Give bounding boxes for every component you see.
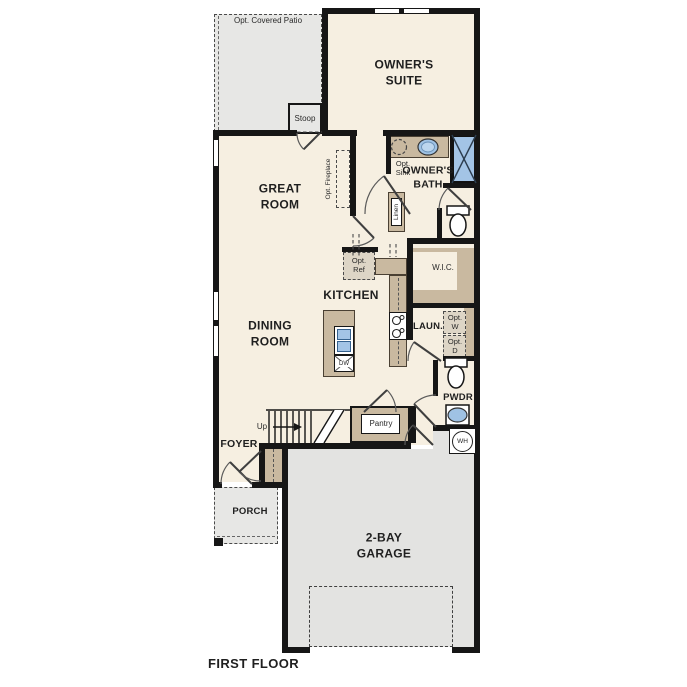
wall	[443, 183, 480, 188]
opt-dryer-box	[443, 335, 466, 357]
floor-plan: DW WH	[0, 0, 687, 687]
linen-closet-inner	[391, 198, 402, 226]
opt-washer-box	[443, 311, 466, 334]
wall	[410, 406, 416, 443]
garage-door-opening	[309, 586, 453, 647]
wall	[322, 8, 480, 14]
wall	[282, 647, 310, 653]
porch-column	[214, 538, 223, 546]
water-heater-box: WH	[449, 428, 476, 454]
wall	[213, 482, 222, 488]
opt-refrigerator-box	[343, 252, 375, 280]
wall	[386, 136, 391, 174]
wall	[259, 443, 351, 449]
window	[213, 325, 219, 357]
wall	[342, 247, 378, 252]
wall	[322, 8, 328, 136]
opt-fireplace-box	[336, 150, 350, 208]
bath-vanity-counter	[387, 136, 449, 158]
window	[213, 291, 219, 321]
wall	[413, 303, 474, 308]
room-owners-suite	[322, 8, 480, 136]
wic-floor	[413, 252, 457, 290]
wall	[407, 244, 413, 340]
window	[403, 8, 430, 14]
wall	[452, 647, 480, 653]
wall	[259, 443, 265, 485]
wall	[433, 360, 438, 396]
wall	[407, 238, 480, 244]
wall	[383, 130, 480, 136]
wall	[443, 356, 480, 361]
water-heater-label: WH	[457, 438, 468, 445]
wall	[474, 8, 480, 653]
wall	[252, 482, 283, 488]
window	[374, 8, 400, 14]
kitchen-counter-top	[375, 258, 407, 275]
wall	[213, 130, 297, 136]
window	[213, 139, 219, 167]
understair-closet-dash	[273, 449, 274, 482]
plan-title: FIRST FLOOR	[208, 656, 299, 671]
island-sink-basin-2	[337, 341, 351, 352]
pantry-inner	[361, 414, 400, 434]
dishwasher-label: DW	[338, 361, 350, 367]
wall	[350, 136, 356, 216]
cooktop	[389, 312, 407, 340]
wall	[437, 208, 442, 240]
porch-inner-dash	[217, 536, 275, 537]
island-sink-basin-1	[337, 329, 351, 340]
water-heater-circle: WH	[452, 431, 473, 452]
patio-inner-dash	[218, 16, 219, 130]
wall	[282, 443, 288, 653]
dishwasher: DW	[334, 355, 354, 372]
